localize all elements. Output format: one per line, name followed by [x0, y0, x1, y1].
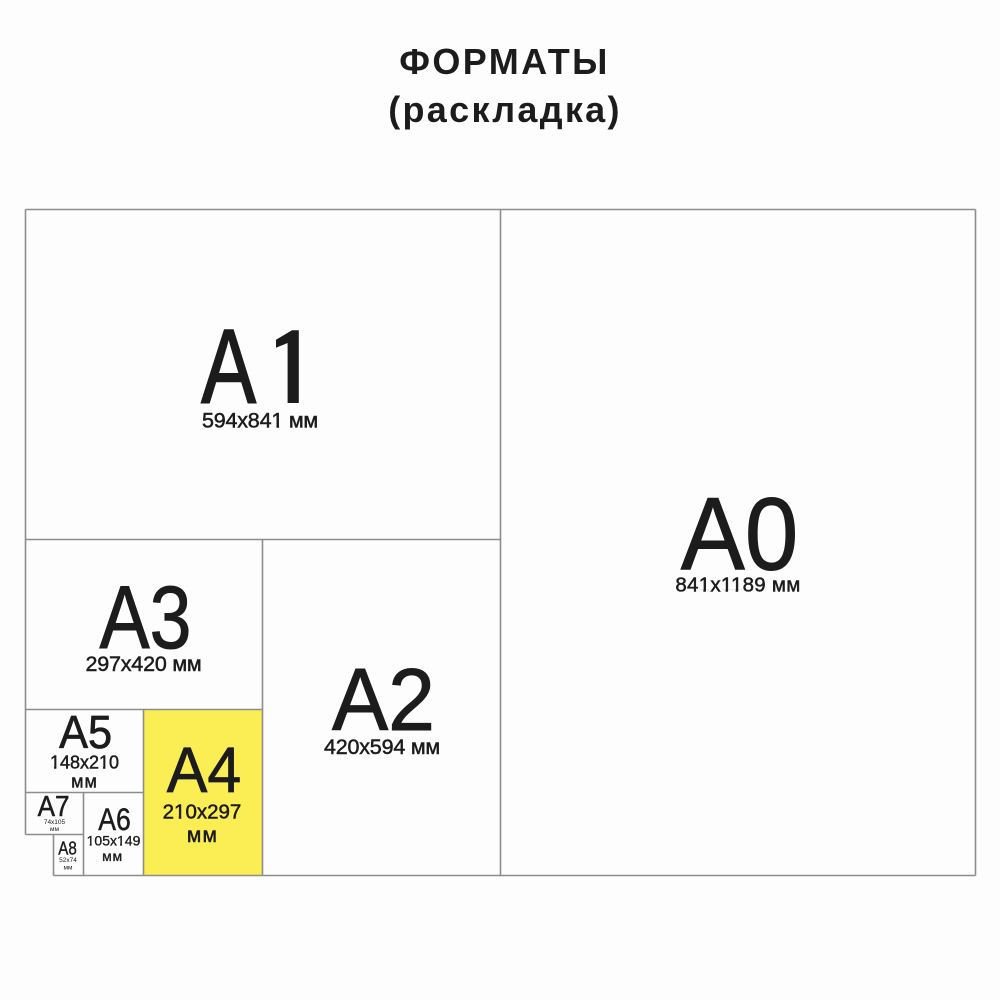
svg-text:мм: мм	[50, 826, 59, 833]
svg-text:420х594 мм: 420х594 мм	[324, 735, 440, 759]
svg-text:А4: А4	[167, 734, 242, 806]
svg-text:52х74: 52х74	[59, 857, 77, 864]
svg-text:297х420 мм: 297х420 мм	[85, 652, 201, 676]
svg-text:74х105: 74х105	[44, 819, 66, 826]
svg-text:мм: мм	[71, 772, 98, 792]
svg-text:148х210: 148х210	[50, 753, 119, 773]
svg-text:841х1189 мм: 841х1189 мм	[675, 574, 800, 597]
svg-text:А5: А5	[59, 706, 112, 758]
svg-text:594х841 мм: 594х841 мм	[202, 408, 318, 432]
svg-text:(раскладка): (раскладка)	[388, 89, 622, 130]
svg-text:105х149: 105х149	[87, 833, 141, 849]
svg-text:мм: мм	[187, 824, 218, 847]
svg-text:мм: мм	[64, 865, 73, 872]
svg-text:ФОРМАТЫ: ФОРМАТЫ	[399, 41, 610, 82]
svg-text:210х297: 210х297	[163, 801, 242, 824]
svg-text:мм: мм	[102, 848, 123, 864]
